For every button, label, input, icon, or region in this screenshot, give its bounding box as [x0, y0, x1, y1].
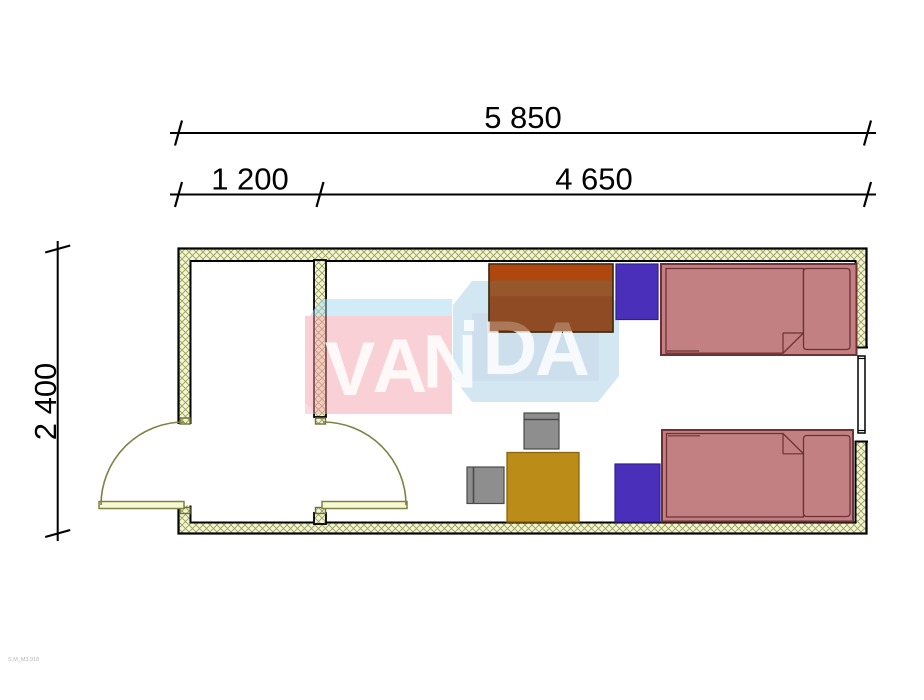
svg-text:1 200: 1 200: [211, 162, 289, 197]
svg-text:2 400: 2 400: [28, 363, 63, 441]
svg-text:A: A: [373, 324, 428, 409]
svg-text:4 650: 4 650: [555, 162, 633, 197]
svg-text:5 850: 5 850: [484, 100, 562, 135]
svg-text:N: N: [423, 320, 478, 405]
svg-text:V: V: [325, 327, 376, 412]
svg-text:S.M_M3.918: S.M_M3.918: [8, 657, 39, 663]
